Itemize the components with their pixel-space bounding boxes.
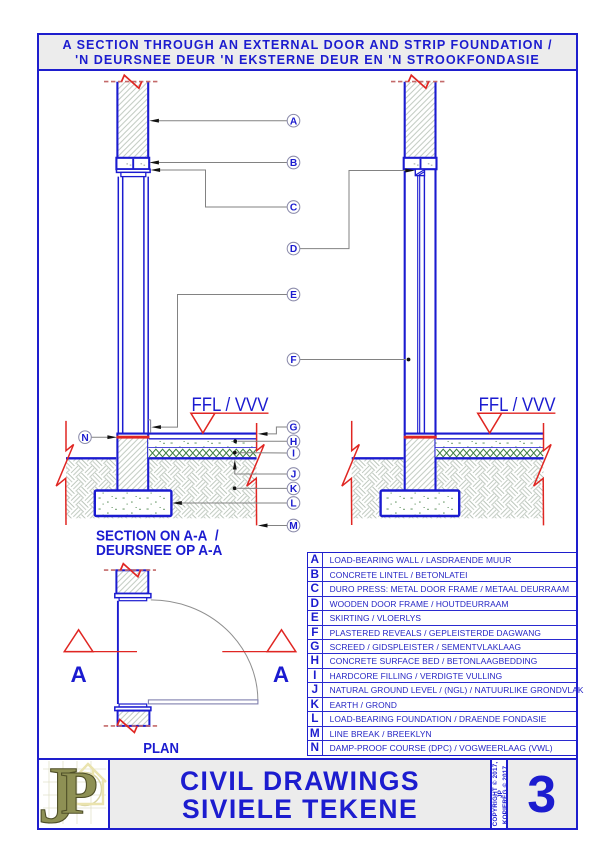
svg-text:D: D (290, 244, 297, 255)
svg-text:I: I (292, 449, 295, 460)
svg-text:M: M (289, 521, 298, 532)
svg-text:C: C (290, 203, 298, 214)
svg-text:E: E (290, 290, 297, 301)
svg-text:PLAN: PLAN (143, 741, 179, 757)
svg-text:N: N (81, 433, 88, 444)
svg-text:J: J (291, 470, 297, 481)
svg-text:A: A (70, 662, 86, 687)
svg-text:A: A (290, 116, 298, 127)
svg-text:A: A (273, 662, 289, 687)
svg-text:F: F (290, 355, 296, 366)
svg-text:B: B (290, 158, 297, 169)
svg-text:K: K (290, 484, 298, 495)
svg-text:G: G (290, 423, 298, 434)
svg-text:DEURSNEE OP A-A: DEURSNEE OP A-A (96, 543, 223, 559)
svg-text:L: L (290, 499, 296, 510)
svg-text:SECTION ON A-A /: SECTION ON A-A / (96, 528, 219, 544)
svg-text:P: P (61, 761, 98, 828)
